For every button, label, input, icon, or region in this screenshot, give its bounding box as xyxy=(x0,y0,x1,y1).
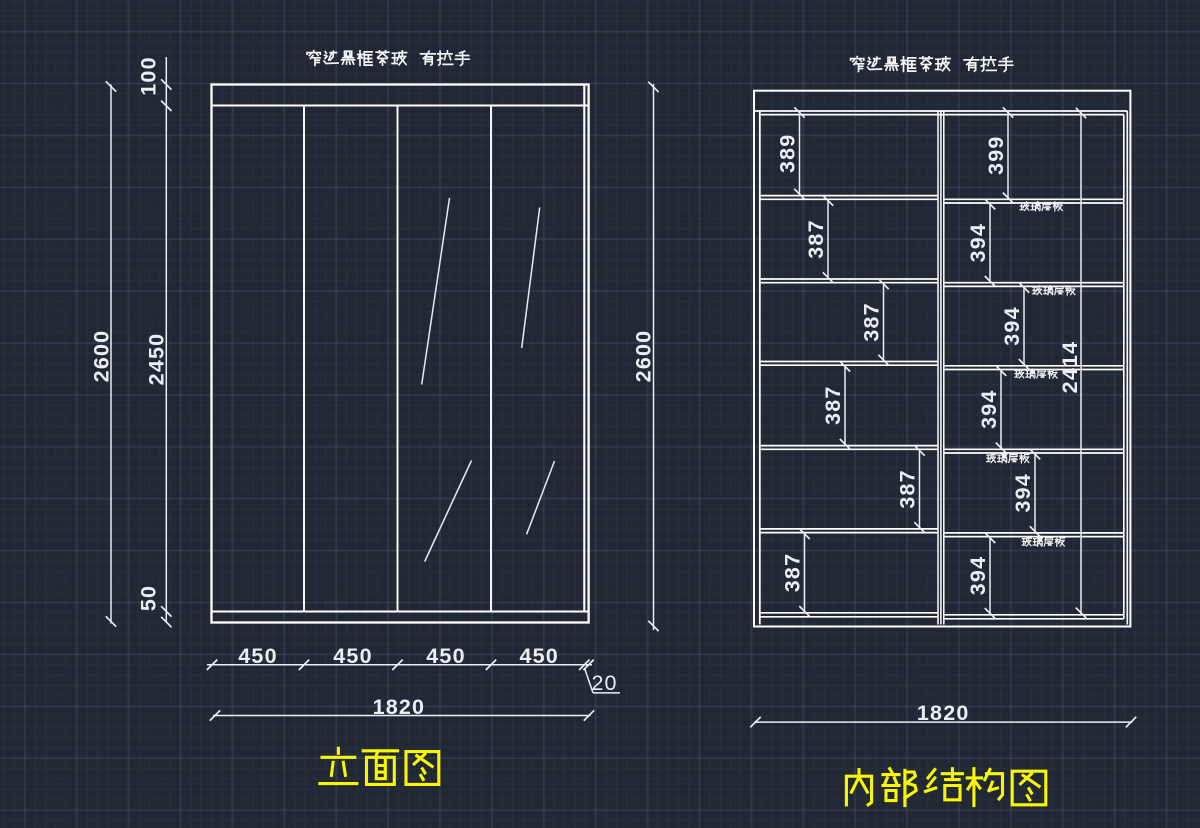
svg-text:387: 387 xyxy=(804,219,828,258)
svg-text:2600: 2600 xyxy=(90,330,114,383)
svg-text:394: 394 xyxy=(1000,306,1024,345)
svg-text:2450: 2450 xyxy=(145,333,169,386)
svg-text:100: 100 xyxy=(137,56,161,95)
svg-text:2414: 2414 xyxy=(1058,341,1082,394)
svg-text:2600: 2600 xyxy=(632,330,656,383)
svg-text:450: 450 xyxy=(333,644,372,668)
svg-text:1820: 1820 xyxy=(917,701,970,725)
svg-text:450: 450 xyxy=(238,644,277,668)
svg-text:450: 450 xyxy=(426,644,465,668)
svg-text:50: 50 xyxy=(137,585,161,611)
svg-text:450: 450 xyxy=(519,644,558,668)
svg-text:387: 387 xyxy=(896,469,920,508)
svg-text:394: 394 xyxy=(977,389,1001,428)
svg-text:387: 387 xyxy=(860,302,884,341)
svg-text:394: 394 xyxy=(966,556,990,595)
svg-text:387: 387 xyxy=(781,553,805,592)
svg-text:389: 389 xyxy=(776,134,800,173)
svg-text:394: 394 xyxy=(966,223,990,262)
svg-text:387: 387 xyxy=(821,385,845,424)
svg-text:394: 394 xyxy=(1011,473,1035,512)
svg-text:1820: 1820 xyxy=(373,695,426,719)
svg-text:399: 399 xyxy=(984,135,1008,174)
svg-text:20: 20 xyxy=(592,671,618,695)
